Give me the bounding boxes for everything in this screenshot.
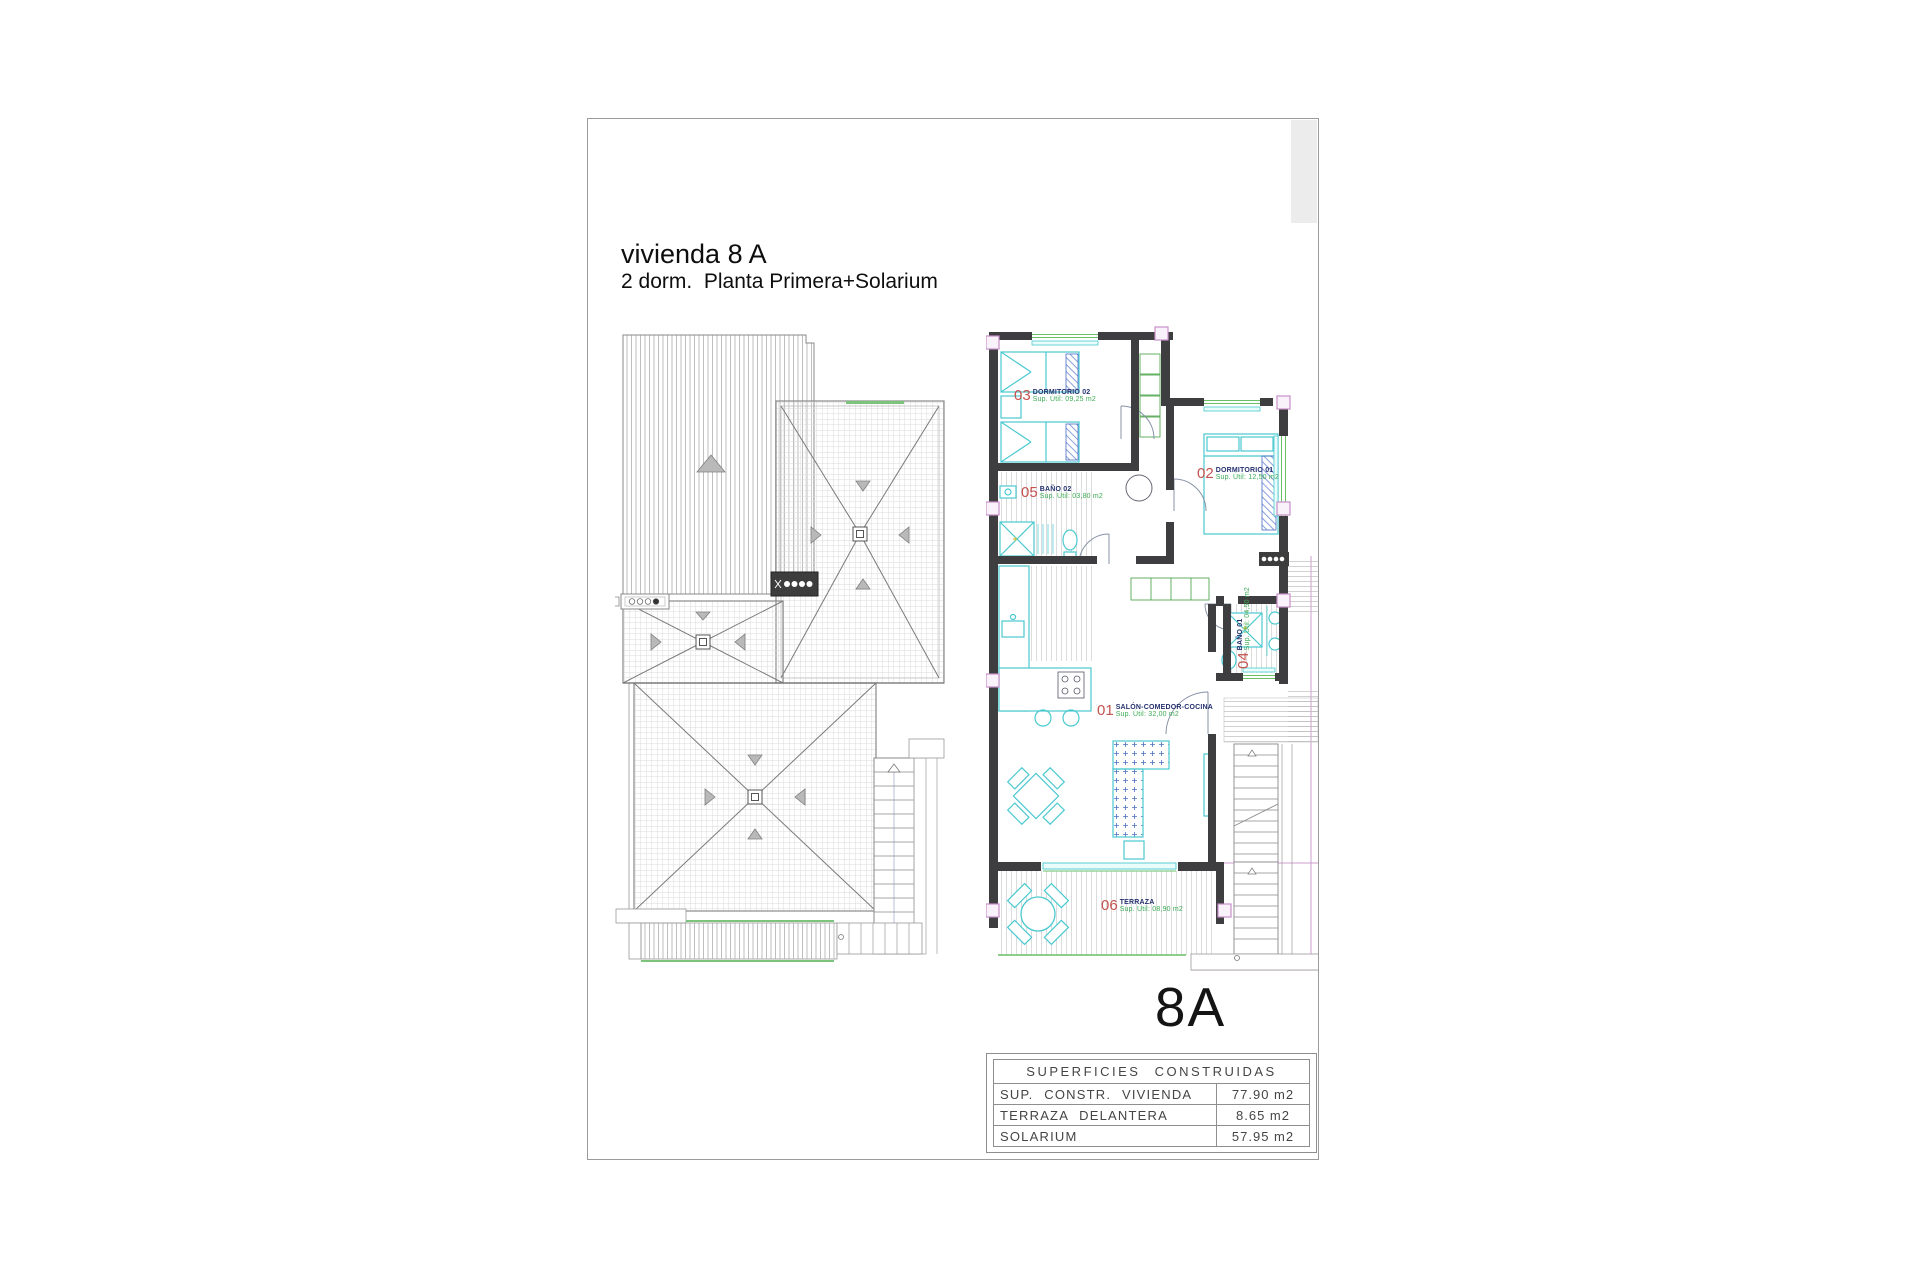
first-floor-plan: [986, 326, 1319, 986]
row-value: 77.90 m2: [1216, 1084, 1309, 1104]
row-label: SOLARIUM: [994, 1129, 1216, 1144]
roof-vent-box-dark: [771, 572, 818, 596]
room-label-salon: 01 SALÓN-COMEDOR-COCINA Sup. Útil: 32,00…: [1097, 704, 1213, 718]
top-right-shade: [1291, 120, 1317, 223]
areas-table-header: SUPERFICIES CONSTRUIDAS: [994, 1060, 1309, 1084]
side-deck-upper: [1288, 561, 1319, 616]
row-value: 8.65 m2: [1216, 1105, 1309, 1125]
water-heater: [1126, 475, 1152, 501]
table-row: SOLARIUM 57.95 m2: [994, 1126, 1309, 1146]
door-arcs: [1079, 406, 1231, 734]
table-row: SUP. CONSTR. VIVIENDA 77.90 m2: [994, 1084, 1309, 1105]
table-row: TERRAZA DELANTERA 8.65 m2: [994, 1105, 1309, 1126]
room-label-terraza: 06 TERRAZA Sup. Útil: 08,90 m2: [1101, 899, 1183, 913]
roof-terrace-strip: [641, 923, 837, 959]
solarium-roof-plan: [613, 331, 963, 981]
side-deck-lower: [1288, 688, 1319, 742]
room-label-bano-02: 05 BAÑO 02 Sup. Útil: 03,80 m2: [1021, 486, 1103, 500]
wall-vent-box: [1259, 552, 1289, 566]
roof-drain: [853, 527, 867, 541]
screenshot-canvas: vivienda 8 A 2 dorm. Planta Primera+Sola…: [0, 0, 1920, 1280]
plan-sheet: vivienda 8 A 2 dorm. Planta Primera+Sola…: [587, 118, 1319, 1160]
room-label-bano-01: 04 BAÑO 01 Sup. Útil: 04,50 m2: [1237, 587, 1251, 669]
plan-title: vivienda 8 A: [621, 239, 938, 269]
room-label-dormitorio-01: 02 DORMITORIO 01 Sup. Útil: 12,50 m2: [1197, 467, 1279, 481]
roof-vent-box-light: [615, 594, 669, 609]
plan-subtitle: 2 dorm. Planta Primera+Solarium: [621, 269, 938, 295]
roof-drain: [748, 790, 762, 804]
row-label: SUP. CONSTR. VIVIENDA: [994, 1087, 1216, 1102]
title-block: vivienda 8 A 2 dorm. Planta Primera+Sola…: [621, 239, 938, 295]
areas-table: SUPERFICIES CONSTRUIDAS SUP. CONSTR. VIV…: [986, 1053, 1317, 1153]
row-value: 57.95 m2: [1216, 1126, 1309, 1146]
unit-label: 8A: [1093, 975, 1288, 1039]
room-label-dormitorio-02: 03 DORMITORIO 02 Sup. Útil: 09,25 m2: [1014, 389, 1096, 403]
roof-drain: [696, 635, 710, 649]
row-label: TERRAZA DELANTERA: [994, 1108, 1216, 1123]
